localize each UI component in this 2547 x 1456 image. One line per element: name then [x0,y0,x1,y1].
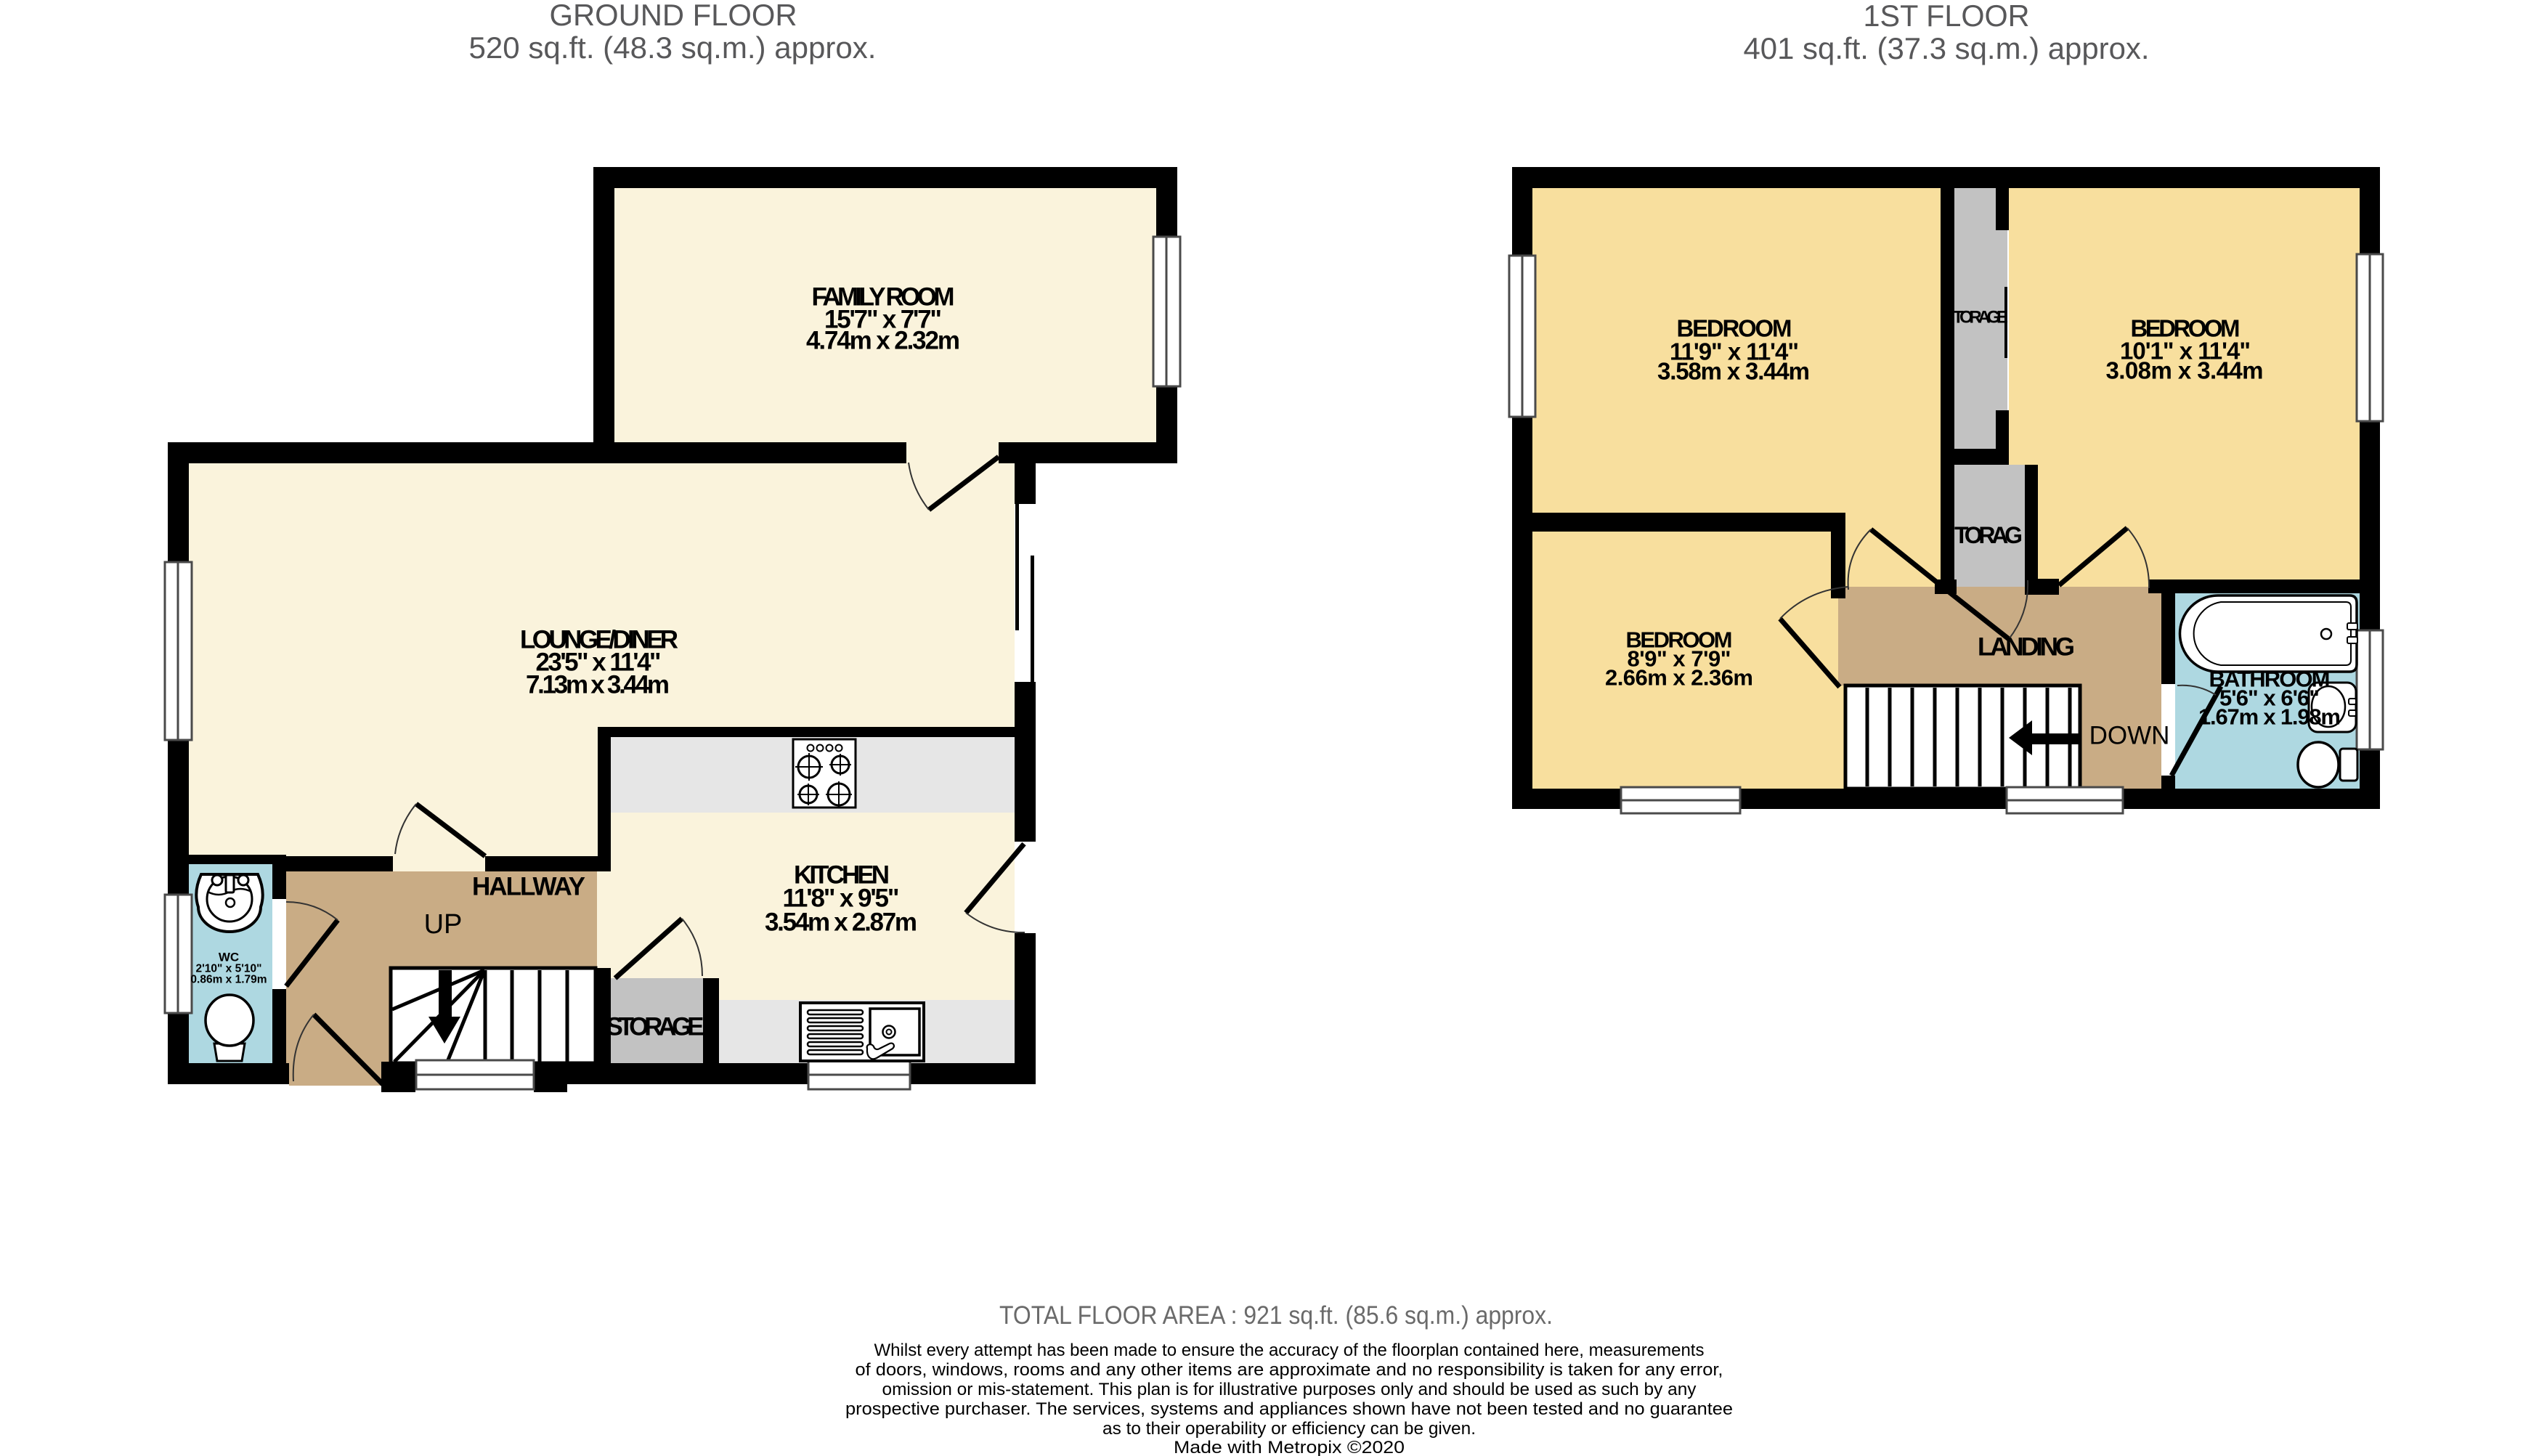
svg-text:STORAGE: STORAGE [606,1013,704,1041]
svg-text:2.66m x 2.36m: 2.66m x 2.36m [1605,665,1753,691]
svg-text:UP: UP [424,909,463,940]
svg-text:401 sq.ft. (37.3 sq.m.) approx: 401 sq.ft. (37.3 sq.m.) approx. [1744,31,2150,65]
svg-text:0.86m x 1.79m: 0.86m x 1.79m [190,974,267,986]
svg-text:3.58m x 3.44m: 3.58m x 3.44m [1657,358,1810,385]
svg-text:omission or mis-statement. Thi: omission or mis-statement. This plan is … [882,1380,1697,1399]
svg-text:LANDING: LANDING [1978,633,2075,662]
svg-text:of doors, windows, rooms and a: of doors, windows, rooms and any other i… [856,1360,1723,1380]
svg-text:3.08m x 3.44m: 3.08m x 3.44m [2106,357,2264,384]
svg-text:520 sq.ft. (48.3 sq.m.) approx: 520 sq.ft. (48.3 sq.m.) approx. [469,30,877,65]
svg-text:TORAGE: TORAGE [1953,308,2008,328]
svg-text:Whilst every attempt has been: Whilst every attempt has been made to en… [874,1341,1705,1360]
svg-text:TORAG: TORAG [1954,522,2023,548]
svg-text:1ST FLOOR: 1ST FLOOR [1864,0,2030,33]
svg-text:TOTAL FLOOR AREA : 921 sq.ft.: TOTAL FLOOR AREA : 921 sq.ft. (85.6 sq.m… [999,1301,1553,1330]
svg-text:3.54m x 2.87m: 3.54m x 2.87m [765,908,917,937]
svg-text:7.13m x 3.44m: 7.13m x 3.44m [526,671,670,699]
svg-text:as to their operability or eff: as to their operability or efficiency ca… [1102,1419,1476,1439]
svg-text:prospective purchaser. The ser: prospective purchaser. The services, sys… [845,1399,1733,1419]
svg-text:1.67m x 1.98m: 1.67m x 1.98m [2198,704,2341,730]
svg-text:4.74m x 2.32m: 4.74m x 2.32m [806,327,960,355]
svg-text:GROUND FLOOR: GROUND FLOOR [550,0,797,32]
svg-text:Made with Metropix ©2020: Made with Metropix ©2020 [1174,1438,1405,1456]
svg-text:DOWN: DOWN [2089,722,2170,750]
svg-text:HALLWAY: HALLWAY [472,873,585,901]
